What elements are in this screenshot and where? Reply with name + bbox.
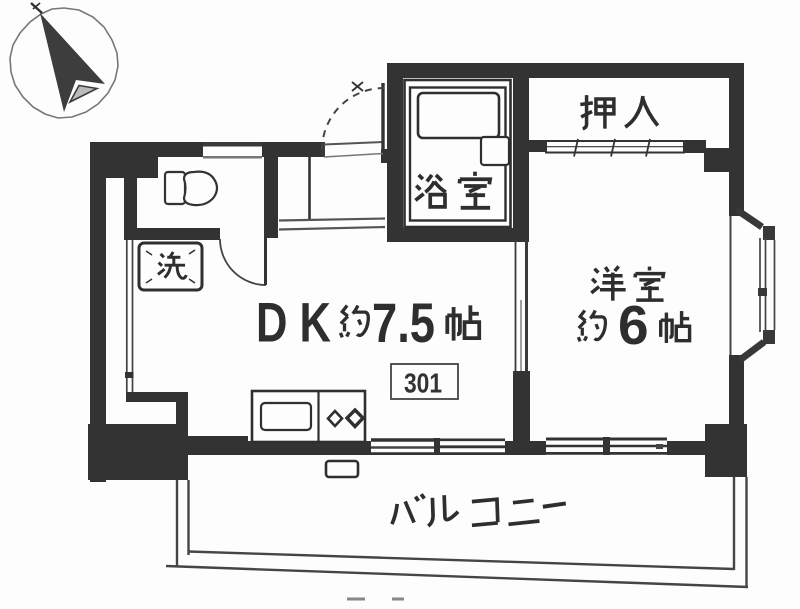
svg-text:D K: D K bbox=[256, 291, 331, 354]
svg-text:301: 301 bbox=[404, 368, 442, 399]
svg-text:7.5: 7.5 bbox=[372, 291, 435, 354]
svg-text:6: 6 bbox=[618, 294, 649, 356]
